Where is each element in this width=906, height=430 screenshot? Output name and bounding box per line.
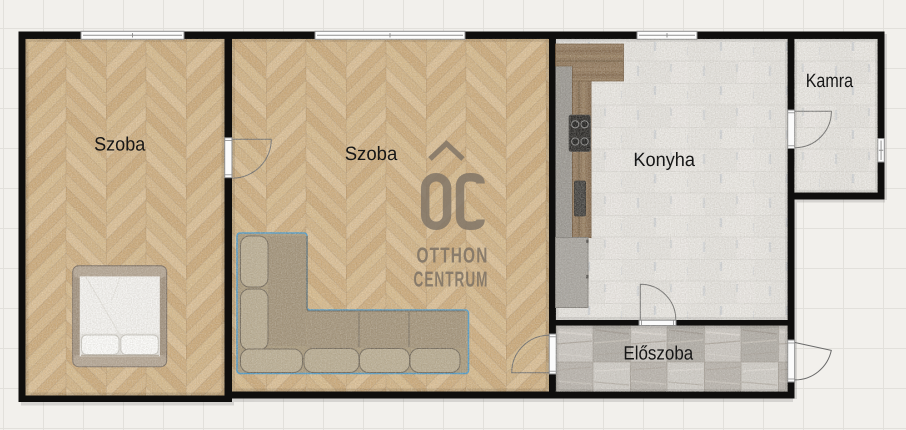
svg-text:OTTHON: OTTHON (417, 242, 489, 267)
svg-text:CENTRUM: CENTRUM (414, 267, 489, 292)
svg-text:Kamra: Kamra (806, 71, 854, 92)
svg-text:Szoba: Szoba (94, 134, 145, 155)
svg-text:Konyha: Konyha (633, 150, 695, 171)
svg-text:Szoba: Szoba (345, 144, 398, 165)
svg-text:Előszoba: Előszoba (623, 343, 693, 364)
